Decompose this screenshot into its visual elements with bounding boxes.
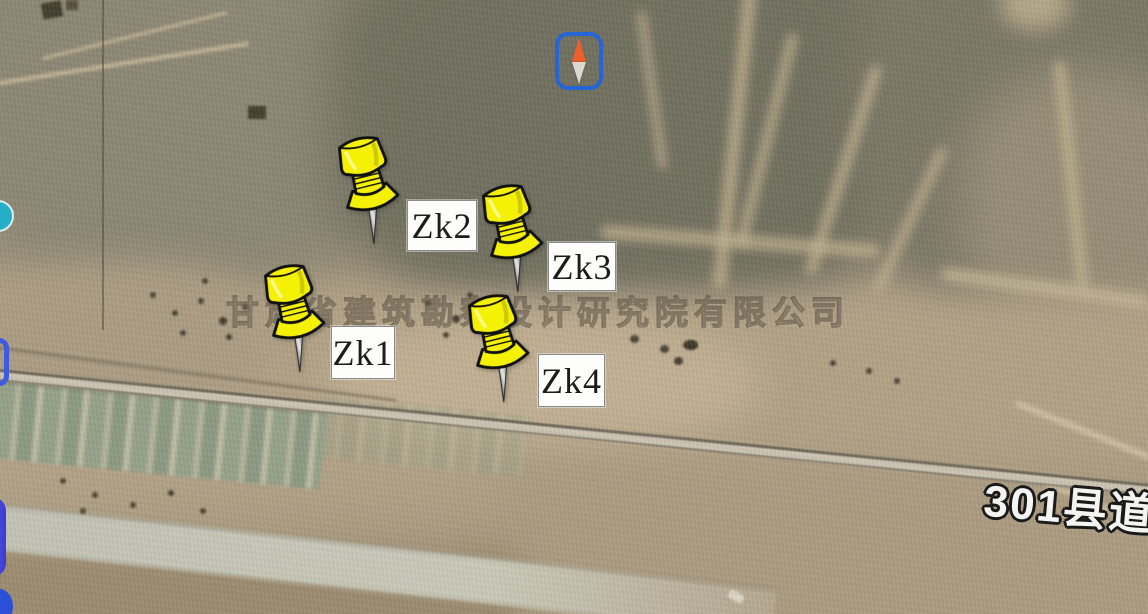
dirt-track: [42, 11, 227, 60]
terrain-patch: [330, 0, 910, 320]
erosion-gully: [712, 0, 756, 290]
terrain-patch: [0, 548, 520, 614]
pushpin-zk2[interactable]: [320, 121, 420, 259]
building: [66, 0, 78, 10]
marker-label-zk3[interactable]: Zk3: [548, 242, 616, 291]
erosion-gully: [872, 145, 949, 294]
terrain-patch: [960, 70, 1148, 350]
teal-circle-marker-icon[interactable]: [0, 200, 14, 232]
erosion-gully: [804, 64, 882, 277]
terrain-patch: [850, 0, 1148, 320]
shrub-patch: [683, 340, 698, 350]
compass-south-needle-icon: [572, 62, 586, 84]
road-name-label: 301县道: [982, 465, 1148, 544]
satellite-map[interactable]: 甘肃省建筑勘察设计研究院有限公司 301县道: [0, 0, 1148, 614]
power-line: [102, 0, 104, 330]
light-object: [727, 589, 745, 605]
marker-label-zk2[interactable]: Zk2: [407, 200, 477, 251]
shrub-cluster: [60, 478, 66, 484]
building: [248, 106, 266, 119]
erosion-gully: [1014, 400, 1148, 462]
erosion-gully: [940, 267, 1148, 308]
terrain-patch: [0, 262, 270, 412]
erosion-gully: [600, 225, 880, 258]
erosion-gully: [1053, 60, 1089, 290]
blue-rounded-outline-marker-icon[interactable]: [0, 338, 9, 386]
wide-road-band: [0, 500, 778, 614]
compass-north-needle-icon: [572, 38, 586, 62]
marker-label-zk1[interactable]: Zk1: [331, 326, 395, 379]
compass-icon[interactable]: [555, 32, 603, 90]
field-strips: [0, 380, 327, 489]
erosion-gully: [637, 10, 667, 170]
building: [41, 0, 63, 19]
shrub-cluster: [630, 335, 639, 343]
erosion-gully: [736, 32, 799, 248]
shrub-cluster: [830, 360, 836, 366]
shrub-cluster: [150, 292, 156, 298]
dirt-track: [0, 42, 249, 87]
blue-tall-marker-icon[interactable]: [0, 497, 6, 577]
blue-bottom-marker-icon[interactable]: [0, 589, 13, 614]
marker-label-zk4[interactable]: Zk4: [538, 354, 605, 407]
erosion-gully: [1000, 0, 1070, 30]
